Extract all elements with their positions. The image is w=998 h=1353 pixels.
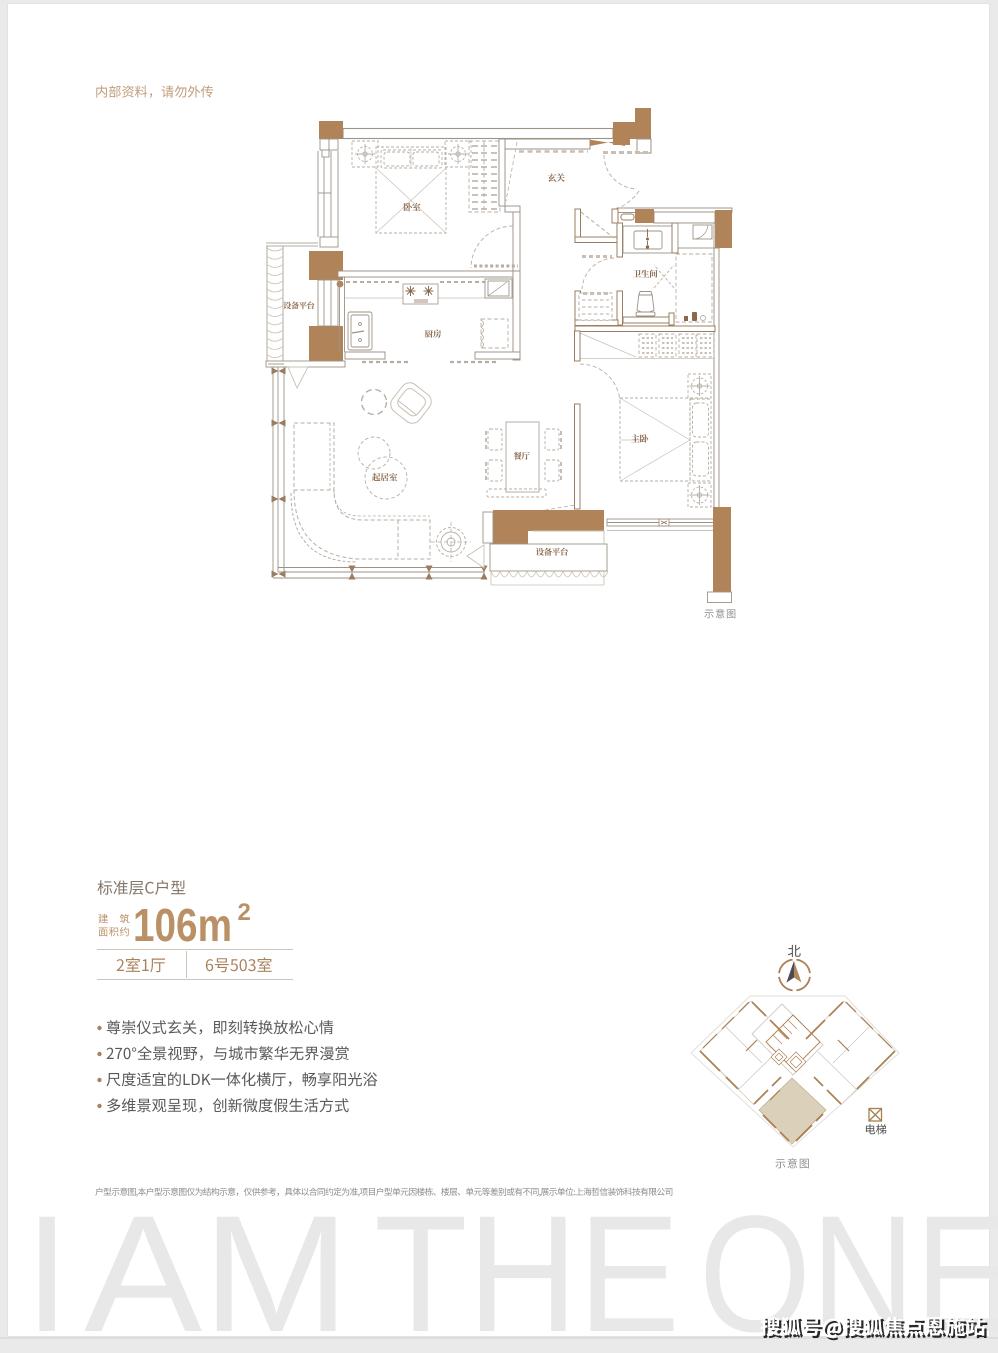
svg-text:THE: THE (374, 1182, 680, 1348)
svg-text:I: I (24, 1182, 70, 1348)
svg-text:106m: 106m (133, 899, 232, 951)
svg-text:2: 2 (238, 899, 251, 926)
svg-text:AM: AM (84, 1182, 350, 1348)
